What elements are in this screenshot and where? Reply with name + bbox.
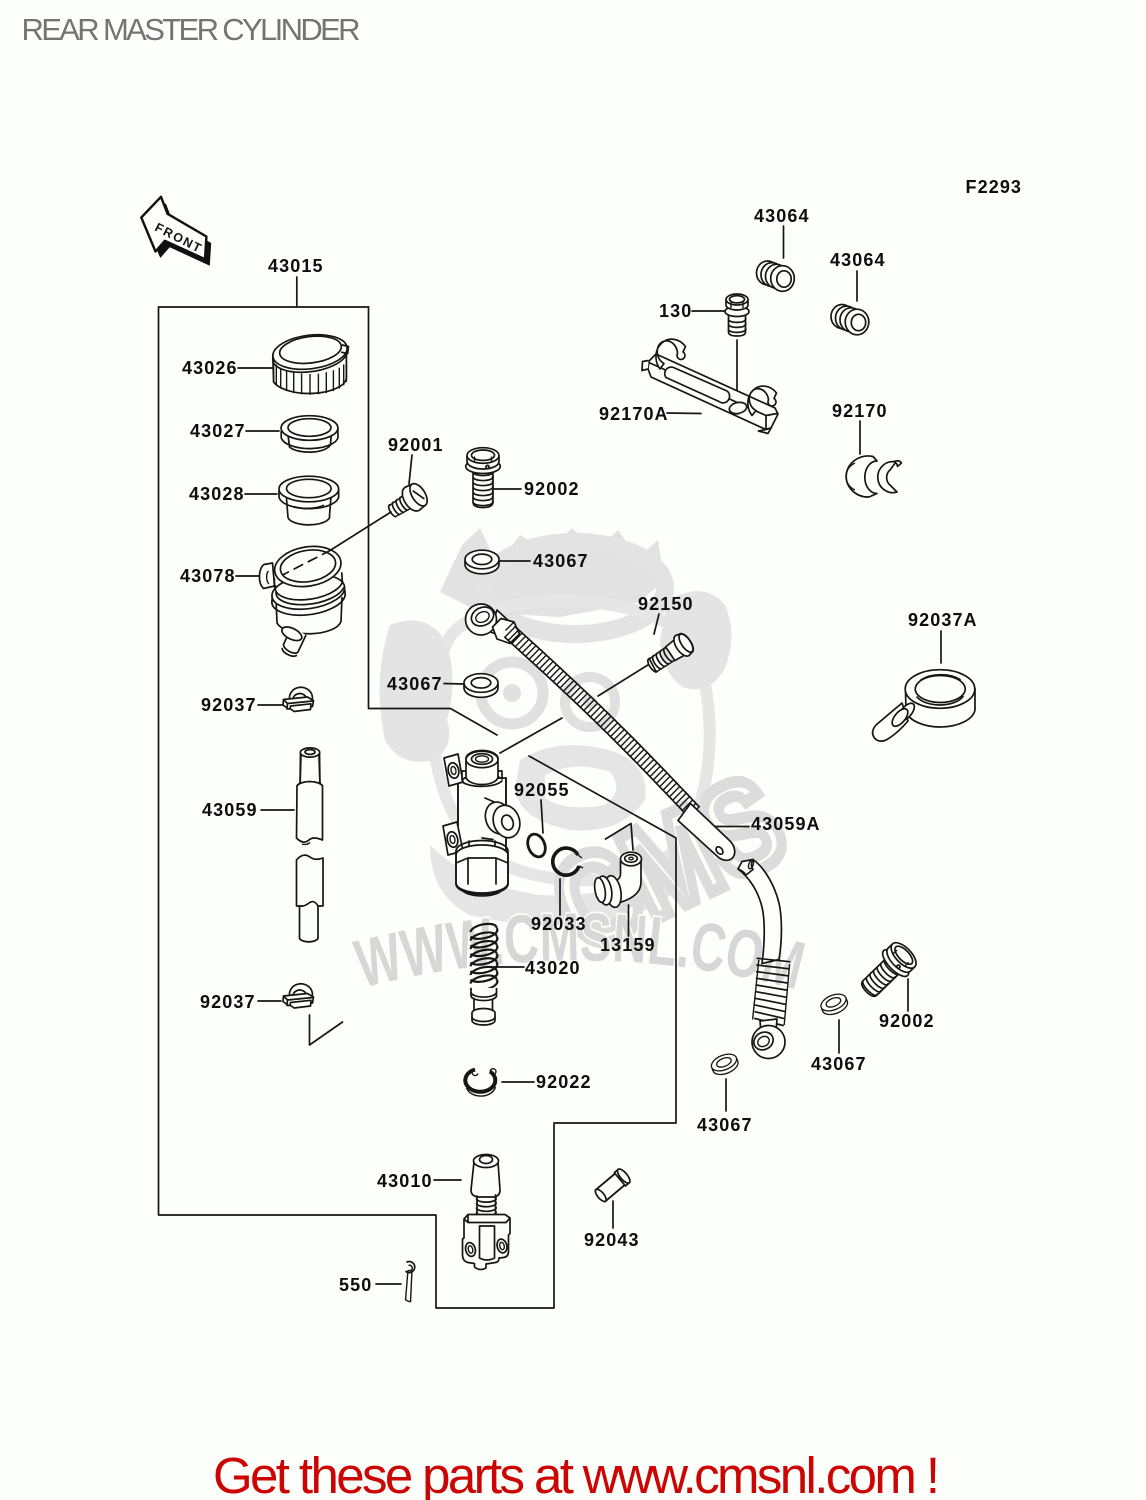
svg-text:92033: 92033 [531, 914, 587, 934]
svg-text:92055: 92055 [514, 780, 570, 800]
svg-text:43020: 43020 [525, 958, 581, 978]
svg-text:92002: 92002 [524, 479, 580, 499]
svg-text:43067: 43067 [533, 551, 589, 571]
svg-text:43015: 43015 [268, 256, 324, 276]
svg-text:F2293: F2293 [966, 177, 1023, 197]
svg-text:REAR MASTER CYLINDER: REAR MASTER CYLINDER [22, 12, 361, 47]
svg-text:43028: 43028 [189, 484, 245, 504]
svg-text:43027: 43027 [190, 421, 246, 441]
svg-text:92170A: 92170A [599, 404, 669, 424]
svg-text:43059A: 43059A [751, 814, 821, 834]
svg-text:43026: 43026 [182, 358, 238, 378]
svg-text:Get these parts at www.cmsnl.c: Get these parts at www.cmsnl.com ! [213, 1447, 940, 1500]
svg-text:92022: 92022 [536, 1072, 592, 1092]
svg-text:13159: 13159 [600, 935, 656, 955]
svg-text:92002: 92002 [879, 1011, 935, 1031]
svg-text:92037: 92037 [200, 992, 256, 1012]
svg-text:43067: 43067 [387, 674, 443, 694]
svg-text:550: 550 [339, 1275, 372, 1295]
svg-text:43010: 43010 [377, 1171, 433, 1191]
svg-text:92150: 92150 [638, 594, 694, 614]
svg-text:43064: 43064 [754, 206, 810, 226]
svg-text:130: 130 [659, 301, 692, 321]
svg-text:92043: 92043 [584, 1230, 640, 1250]
svg-text:43059: 43059 [202, 800, 258, 820]
svg-text:43067: 43067 [697, 1115, 753, 1135]
svg-text:43067: 43067 [811, 1054, 867, 1074]
svg-text:92037A: 92037A [908, 610, 978, 630]
svg-text:92170: 92170 [832, 401, 888, 421]
svg-text:92001: 92001 [388, 435, 444, 455]
svg-text:43064: 43064 [830, 250, 886, 270]
svg-text:43078: 43078 [180, 566, 236, 586]
svg-text:92037: 92037 [201, 695, 257, 715]
